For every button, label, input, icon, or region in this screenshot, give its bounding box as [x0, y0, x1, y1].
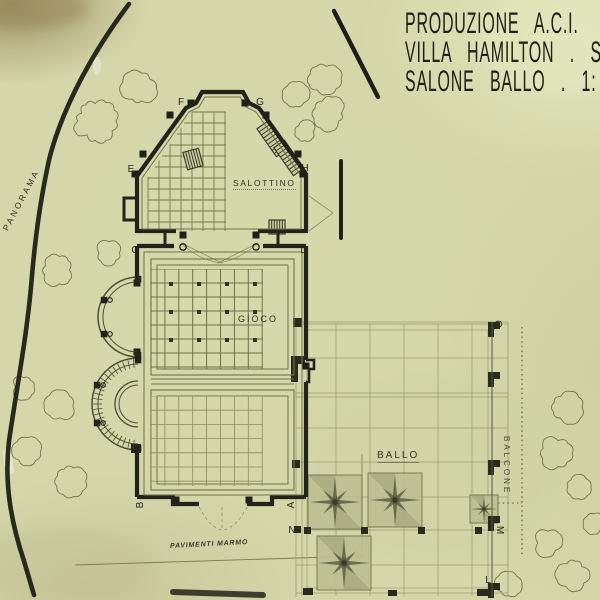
tree-symbol	[282, 82, 310, 108]
column	[180, 232, 187, 239]
tree-symbol	[44, 390, 74, 420]
tree-symbol	[583, 513, 600, 534]
tree-symbol	[307, 64, 342, 95]
tree-symbol	[74, 100, 118, 143]
star-panel	[308, 475, 362, 529]
reference-letter-b: B	[136, 502, 146, 509]
tree-symbol	[312, 96, 344, 132]
star-panel	[368, 473, 422, 527]
balcone-label: BALCONE	[502, 436, 511, 495]
reference-letter-e: E	[128, 165, 135, 175]
reference-letter-m: M	[494, 526, 504, 534]
tree-symbol	[97, 240, 121, 266]
reference-letter-a: A	[287, 502, 297, 509]
tree-symbol	[295, 120, 315, 142]
tree-symbol	[55, 466, 87, 498]
reference-letter-l: L	[485, 576, 491, 586]
column	[188, 100, 195, 107]
pilaster	[488, 372, 500, 387]
tree-symbol	[12, 437, 42, 466]
salottino-floor-grid	[148, 112, 226, 231]
reference-letter-n: N	[288, 526, 295, 536]
column	[263, 112, 270, 119]
star-panel	[317, 536, 371, 590]
column	[242, 100, 249, 107]
tree-symbol	[536, 530, 563, 558]
site-edge-mark	[334, 11, 378, 97]
tree-symbol	[43, 254, 72, 286]
exedra-apses	[92, 276, 141, 453]
reference-letter-o: O	[492, 320, 502, 328]
tree-symbol	[555, 560, 590, 592]
gioco-beam-grid-lower	[151, 396, 263, 486]
scale-bar-smudge	[173, 592, 263, 595]
reference-letter-f: F	[178, 98, 184, 108]
hatched-stair	[274, 140, 304, 175]
hatched-stair	[183, 148, 203, 170]
room-label-gioco: GIOCO	[238, 314, 278, 324]
room-label-ballo: BALLO	[377, 450, 419, 463]
tree-symbol	[120, 70, 158, 103]
column	[295, 151, 302, 158]
door-swing	[199, 507, 247, 531]
room-label-salottino: SALOTTINO	[233, 178, 296, 190]
reference-letter-g: G	[256, 98, 264, 108]
column	[140, 151, 147, 158]
title-line-3: SALONE BALLO . 1:	[405, 65, 596, 99]
column	[167, 112, 174, 119]
reference-letter-c: C	[131, 246, 138, 256]
column	[253, 232, 260, 239]
blueprint-canvas: PRODUZIONE A.C.I. VILLA HAMILTON . S SAL…	[0, 0, 600, 600]
reference-letter-h: H	[301, 164, 308, 174]
tree-symbol	[551, 391, 583, 424]
tree-symbol	[567, 474, 591, 499]
reference-letter-d: D	[300, 246, 307, 256]
